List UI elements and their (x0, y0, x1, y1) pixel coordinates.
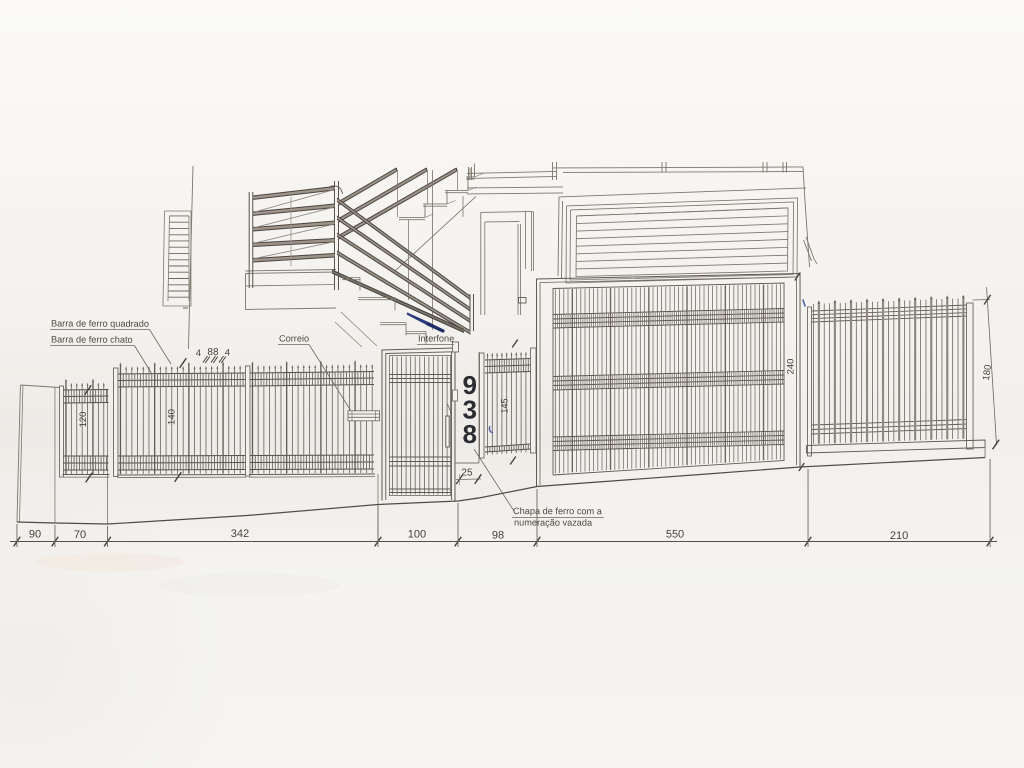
svg-text:25: 25 (461, 467, 473, 478)
svg-text:140: 140 (166, 409, 177, 425)
svg-text:Barra de ferro quadrado: Barra de ferro quadrado (51, 318, 149, 328)
svg-text:210: 210 (890, 530, 908, 542)
svg-text:120: 120 (78, 412, 89, 428)
svg-text:100: 100 (408, 528, 426, 540)
svg-text:70: 70 (74, 529, 86, 541)
svg-text:numeração vazada: numeração vazada (514, 518, 593, 528)
svg-text:4: 4 (196, 348, 201, 359)
svg-text:98: 98 (492, 529, 504, 541)
svg-text:Barra de ferro chato: Barra de ferro chato (51, 334, 133, 344)
svg-text:Correio: Correio (279, 333, 309, 343)
svg-text:240: 240 (786, 359, 797, 375)
svg-text:342: 342 (231, 528, 249, 540)
svg-text:180: 180 (981, 364, 994, 381)
svg-text:550: 550 (666, 528, 684, 540)
svg-text:88: 88 (207, 347, 219, 358)
svg-text:145: 145 (499, 398, 509, 413)
svg-text:Chapa de ferro com a: Chapa de ferro com a (513, 506, 603, 516)
svg-text:8: 8 (463, 419, 478, 449)
svg-text:Interfone: Interfone (418, 333, 454, 343)
svg-text:90: 90 (29, 528, 41, 540)
